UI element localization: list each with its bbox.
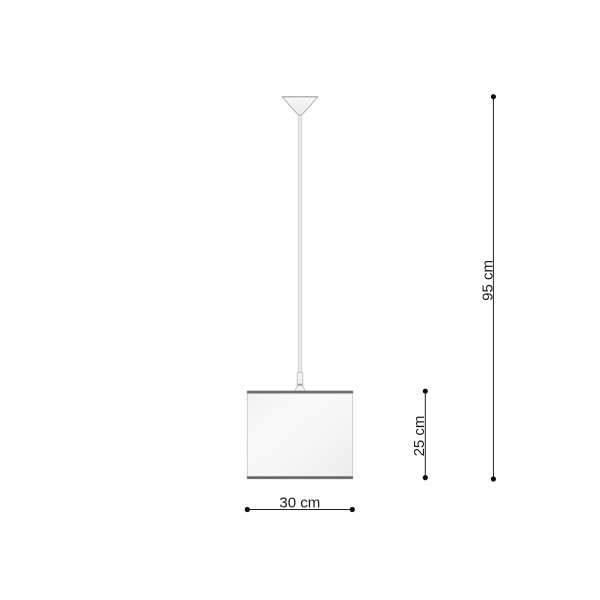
svg-text:95 cm: 95 cm [479, 260, 496, 301]
svg-text:25 cm: 25 cm [411, 416, 428, 457]
svg-text:30 cm: 30 cm [279, 494, 320, 511]
